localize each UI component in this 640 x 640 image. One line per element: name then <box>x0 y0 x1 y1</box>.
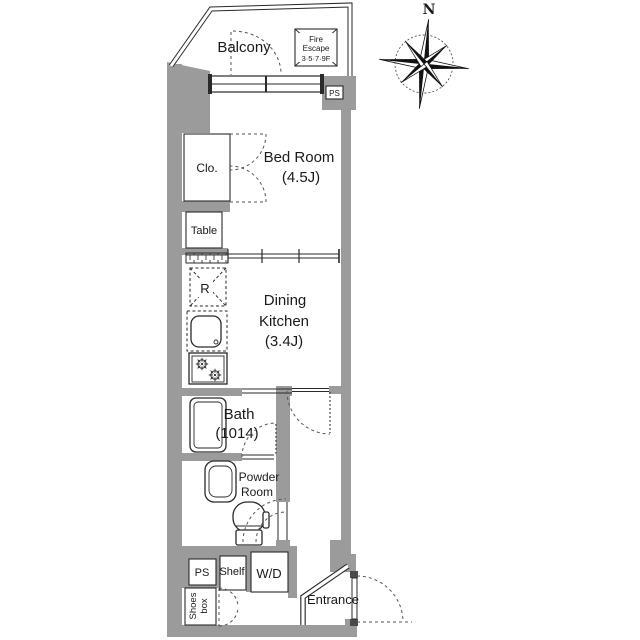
toilet <box>233 502 269 545</box>
closet-label: Clo. <box>196 161 217 175</box>
bath-bottom-wall <box>167 453 242 461</box>
dk-door-right-jamb <box>329 386 341 394</box>
dining-kitchen-label-1: Dining <box>264 292 307 309</box>
bedroom-size: (4.5J) <box>282 169 320 186</box>
wd-right-wall <box>288 546 297 598</box>
dining-kitchen-label-2: Kitchen <box>259 313 309 330</box>
right-wall <box>341 93 351 545</box>
table-label: Table <box>191 225 217 237</box>
top-left-wall-block <box>167 62 210 133</box>
fire-escape-label-1: Fire <box>309 35 323 44</box>
shelf-wd-divider-wall <box>246 553 251 592</box>
bedroom-window <box>208 74 324 94</box>
shoes-box-door-swing <box>219 588 238 626</box>
fridge-space: R <box>190 268 226 306</box>
shelf-label: Shelf <box>219 566 245 578</box>
ps-bottom-label: PS <box>195 567 210 579</box>
compass-north-label: N <box>423 2 436 18</box>
shoes-box-label-2: box <box>199 598 210 614</box>
entrance-label: Entrance <box>307 592 359 607</box>
bath-size: (1014) <box>215 425 258 442</box>
powder-room-label-2: Room <box>241 485 273 499</box>
floor-plan-canvas: Fire Escape 3·5·7·9F Clo. Table Bed Room… <box>0 0 640 640</box>
powder-room-label-1: Powder <box>239 470 280 484</box>
bedroom-label: Bed Room <box>264 149 335 166</box>
entrance-door-swing <box>357 576 403 622</box>
kitchen-sink <box>187 311 227 351</box>
floor-plan: Fire Escape 3·5·7·9F Clo. Table Bed Room… <box>0 0 640 640</box>
closet-door-swing <box>230 134 266 202</box>
washbasin <box>205 461 236 502</box>
ps-top-label: PS <box>329 89 340 98</box>
fire-escape-label-3: 3·5·7·9F <box>302 54 331 63</box>
powder-east-wall <box>276 392 290 502</box>
entrance-door <box>350 571 412 626</box>
compass-rose: N <box>375 2 474 113</box>
bath-label: Bath <box>224 406 255 423</box>
stove <box>189 353 227 384</box>
balcony-label: Balcony <box>217 39 271 56</box>
fridge-label: R <box>200 281 209 296</box>
shoes-box-label-1: Shoes <box>188 592 199 619</box>
closet-bottom-wall <box>167 201 230 212</box>
fire-escape-label-2: Escape <box>303 44 330 53</box>
fire-escape-hatch: Fire Escape 3·5·7·9F <box>295 29 337 66</box>
bath-top-wall <box>167 388 242 396</box>
washer-dryer-label: W/D <box>256 566 281 581</box>
bottom-wall <box>167 625 357 637</box>
dining-kitchen-size: (3.4J) <box>265 333 303 350</box>
